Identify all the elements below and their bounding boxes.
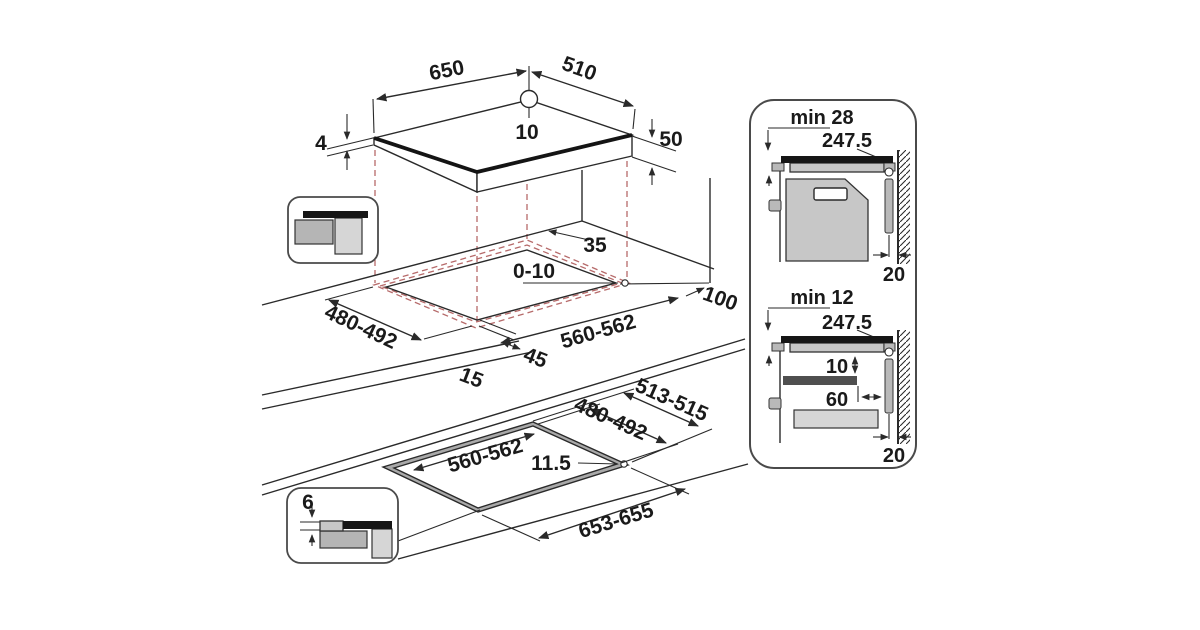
hob-left-trim-bottom [772,343,784,351]
dim-010-marker [622,280,628,286]
section-views-panel: min 28 247.5 20 [750,100,916,468]
dim-rear-clearance: 35 [583,234,607,257]
rear-spacer-top [885,179,893,233]
dim-min-28: min 28 [790,107,853,129]
dim-650: 650 [427,56,466,85]
cable-hole-circle [521,91,538,108]
cutout-outline [386,250,616,320]
dim-shelf-gap: 10 [826,356,848,378]
dim-20-top: 20 [883,264,905,286]
hob-body-section-top [790,163,884,172]
dim-shelf-inset: 60 [826,389,848,411]
wall-hatch-top [899,150,910,264]
cabinet-bracket-bottom [769,398,781,409]
recess-ledge [383,422,628,512]
hob-body-section-bottom [790,343,884,352]
dim-cutout-width: 560-562 [558,310,638,353]
flush-outer-outline [383,422,628,512]
hob-glass-section-top [781,156,893,163]
rear-roller-bottom [885,348,893,356]
inset-cabinet-icon [295,220,333,244]
dim-ledge-leader [578,463,618,464]
rear-roller-top [885,168,893,176]
inset-worktop-icon [335,218,362,254]
rear-spacer-bottom [885,359,893,413]
dim-min-12: min 12 [790,287,853,309]
diagram-canvas: 650 510 10 4 50 [0,0,1200,630]
dim-outer-width: 653-655 [576,498,657,543]
inset-hob-icon [303,211,368,218]
oven-vent [814,188,847,200]
hob-left-trim-top [772,163,784,171]
dim-100-arrow [686,288,704,296]
dim-2475-top: 247.5 [822,130,872,152]
flush-inset-leader [398,510,480,541]
dim-inner-depth: 480-492 [571,393,651,445]
dim-recess-depth: 6 [302,491,314,514]
dim-ledge: 11.5 [531,452,571,475]
dim-10: 10 [515,121,538,144]
dim-front-clearance: 45 [520,343,550,373]
dim-20-bottom: 20 [883,445,905,467]
wall-hatch-bottom [899,330,910,444]
dim-4: 4 [315,132,327,155]
cabinet-bracket-top [769,200,781,211]
dim-510: 510 [559,52,600,86]
installation-diagram: 650 510 10 4 50 [0,0,1200,630]
dim-edge-overlap: 0-10 [513,260,555,283]
hob-glass-section-bottom [781,336,893,343]
dim-50: 50 [659,128,682,151]
dim-outer-depth: 513-515 [632,374,712,426]
dim-4-lines [327,114,373,170]
dim-cutout-depth: 480-492 [321,300,401,353]
surface-mount-inset [288,197,378,263]
dim-2475-bottom: 247.5 [822,312,872,334]
drawer-body [794,410,878,428]
dim-side-clearance: 100 [700,282,741,316]
